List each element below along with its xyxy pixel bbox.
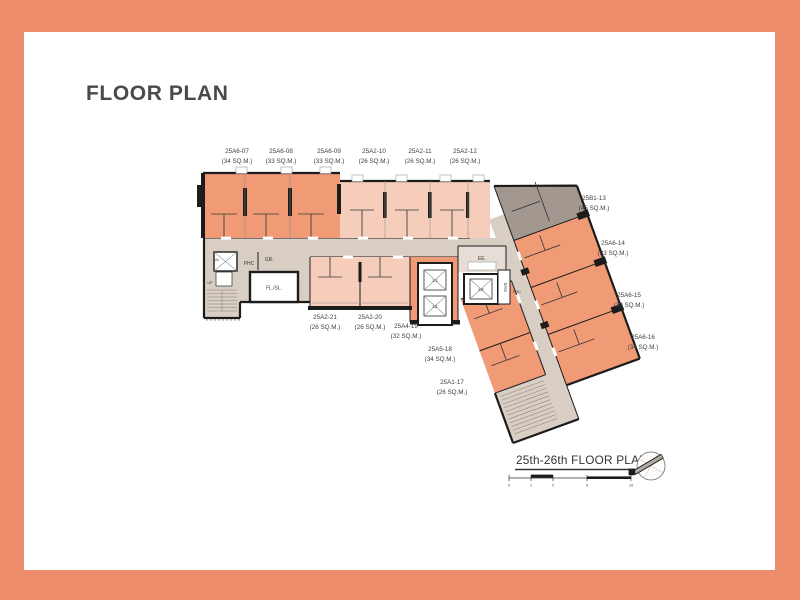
unit-25A5-18: 25A5-18(34 SQ.M.)	[425, 346, 456, 363]
unit-25A1-17: 25A1-17(26 SQ.M.)	[437, 379, 468, 396]
unit-25A2-20-shape	[360, 257, 410, 308]
floor-caption: 25th-26th FLOOR PLAN	[516, 453, 648, 467]
scale-tick-2: 2	[552, 484, 554, 488]
svg-text:25A2-10: 25A2-10	[362, 148, 386, 155]
svg-text:(26 SQ.M.): (26 SQ.M.)	[359, 158, 390, 165]
svg-text:25A5-18: 25A5-18	[428, 346, 452, 353]
svg-text:(26 SQ.M.): (26 SQ.M.)	[355, 324, 386, 331]
svg-text:(26 SQ.M.): (26 SQ.M.)	[405, 158, 436, 165]
dn-label: DN	[213, 258, 219, 262]
phc-small-label: PHC	[513, 290, 521, 294]
unit-25A2-10: 25A2-10(26 SQ.M.)	[359, 148, 390, 165]
unit-block-salmon	[203, 173, 340, 238]
svg-text:(33 SQ.M.): (33 SQ.M.)	[314, 158, 345, 165]
top-units	[197, 167, 490, 240]
scale-tick-3: 5	[586, 484, 588, 488]
svg-text:(26 SQ.M.): (26 SQ.M.)	[310, 324, 341, 331]
scale-tick-0: 0	[508, 484, 510, 488]
svg-text:25A2-21: 25A2-21	[313, 314, 337, 321]
svg-text:25A6-14: 25A6-14	[601, 240, 625, 247]
svg-text:25A6-08: 25A6-08	[269, 148, 293, 155]
svg-text:(26 SQ.M.): (26 SQ.M.)	[437, 389, 468, 396]
svg-text:25A4-19: 25A4-19	[394, 323, 418, 330]
caption: 25th-26th FLOOR PLAN	[515, 453, 648, 470]
scale-tick-4: 10	[629, 484, 633, 488]
svg-text:(45 SQ.M.): (45 SQ.M.)	[579, 205, 610, 212]
l1-label: L1	[432, 278, 438, 283]
ee-label: EE.	[478, 256, 486, 262]
unit-25A2-21: 25A2-21(26 SQ.M.)	[310, 314, 341, 331]
gb-label: GB.	[265, 257, 274, 263]
scale-tick-1: 1	[530, 484, 532, 488]
scale-bar: 0 1 2 5 10	[508, 475, 633, 488]
unit-25A2-11: 25A2-11(26 SQ.M.)	[405, 148, 436, 165]
unit-25A2-21-shape	[310, 257, 360, 308]
phc-label: PHC	[244, 261, 255, 267]
svg-text:(32 SQ.M.): (32 SQ.M.)	[391, 333, 422, 340]
svg-text:25A2-12: 25A2-12	[453, 148, 477, 155]
unit-25A6-07: 25A6-07(34 SQ.M.)	[222, 148, 253, 165]
svg-text:(33 SQ.M.): (33 SQ.M.)	[598, 250, 629, 257]
svg-text:(34 SQ.M.): (34 SQ.M.)	[222, 158, 253, 165]
svg-text:25A2-11: 25A2-11	[408, 148, 432, 155]
svg-text:25A6-15: 25A6-15	[617, 292, 641, 299]
l3-label: L3	[478, 287, 484, 292]
unit-labels-top: 25A6-07(34 SQ.M.) 25A6-08(33 SQ.M.) 25A6…	[222, 148, 481, 165]
svg-text:25A2-20: 25A2-20	[358, 314, 382, 321]
svg-text:(33 SQ.M.): (33 SQ.M.)	[614, 302, 645, 309]
unit-25A4-19: 25A4-19(32 SQ.M.)	[391, 323, 422, 340]
unit-25A2-20: 25A2-20(26 SQ.M.)	[355, 314, 386, 331]
gradient-border-background: FLOOR PLAN	[0, 0, 800, 600]
unit-labels-bottom: 25A2-21(26 SQ.M.) 25A2-20(26 SQ.M.) 25A4…	[310, 314, 468, 396]
fl-sl-label: FL./SL.	[266, 286, 282, 292]
unit-25A2-12: 25A2-12(26 SQ.M.)	[450, 148, 481, 165]
svg-text:25A6-07: 25A6-07	[225, 148, 249, 155]
unit-25A6-14: 25A6-14(33 SQ.M.)	[598, 240, 629, 257]
svg-text:25A1-17: 25A1-17	[440, 379, 464, 386]
unit-25A6-09: 25A6-09(33 SQ.M.)	[314, 148, 345, 165]
up-label: UP	[207, 281, 213, 285]
svg-text:(34 SQ.M.): (34 SQ.M.)	[425, 356, 456, 363]
svg-text:25A6-16: 25A6-16	[631, 334, 655, 341]
floor-plan-svg: PHC GB. FL./SL. DN UP EE. SAN PHC L1 L2 …	[0, 0, 800, 600]
svg-text:25A6-09: 25A6-09	[317, 148, 341, 155]
svg-text:(34 SQ.M.): (34 SQ.M.)	[628, 344, 659, 351]
svg-text:25B1-13: 25B1-13	[582, 195, 606, 202]
san-label: SAN	[503, 282, 508, 291]
unit-25A6-08: 25A6-08(33 SQ.M.)	[266, 148, 297, 165]
l2-label: L2	[432, 304, 438, 309]
svg-text:(26 SQ.M.): (26 SQ.M.)	[450, 158, 481, 165]
svg-text:(33 SQ.M.): (33 SQ.M.)	[266, 158, 297, 165]
